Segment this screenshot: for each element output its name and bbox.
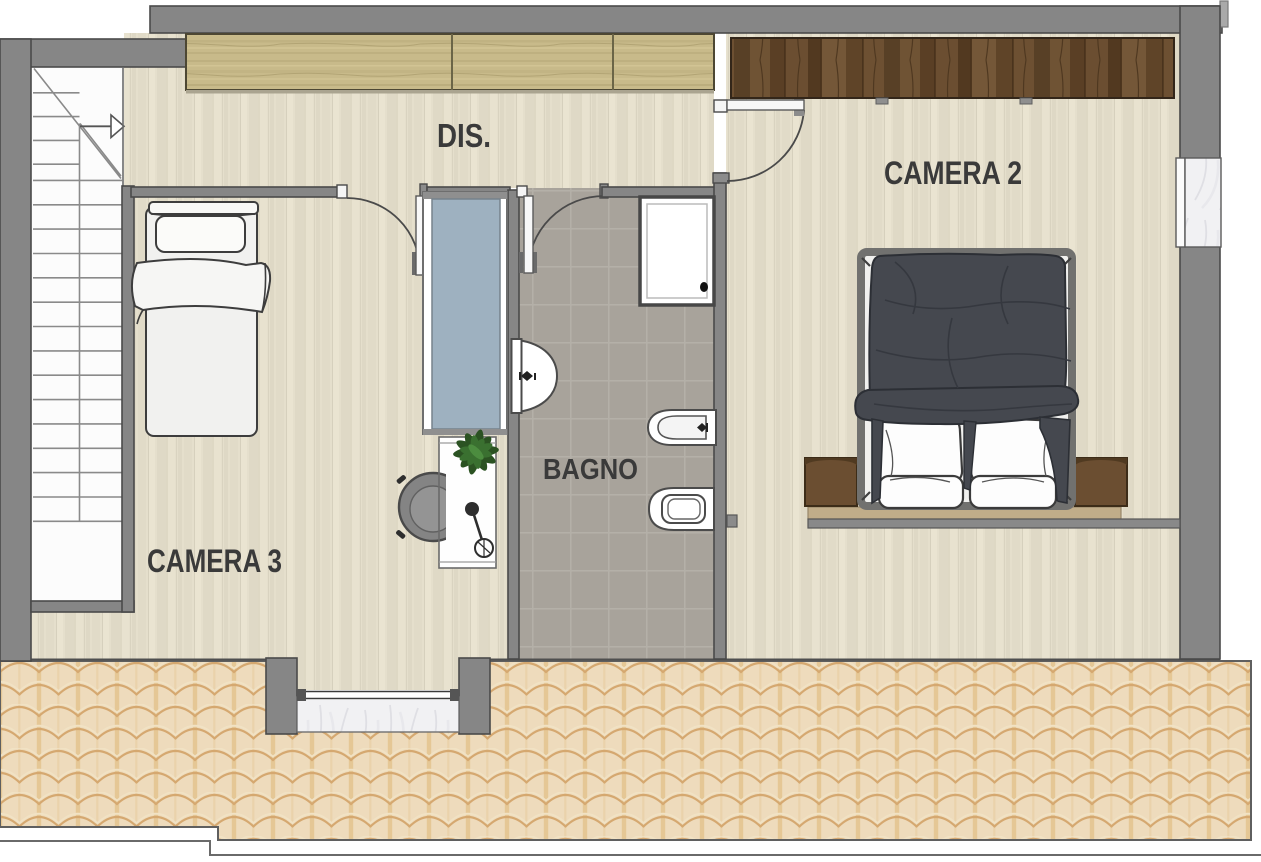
svg-text:BAGNO: BAGNO: [543, 454, 638, 486]
svg-text:CAMERA 3: CAMERA 3: [147, 543, 282, 579]
svg-text:CAMERA 2: CAMERA 2: [884, 155, 1022, 191]
svg-text:DIS.: DIS.: [437, 117, 491, 154]
